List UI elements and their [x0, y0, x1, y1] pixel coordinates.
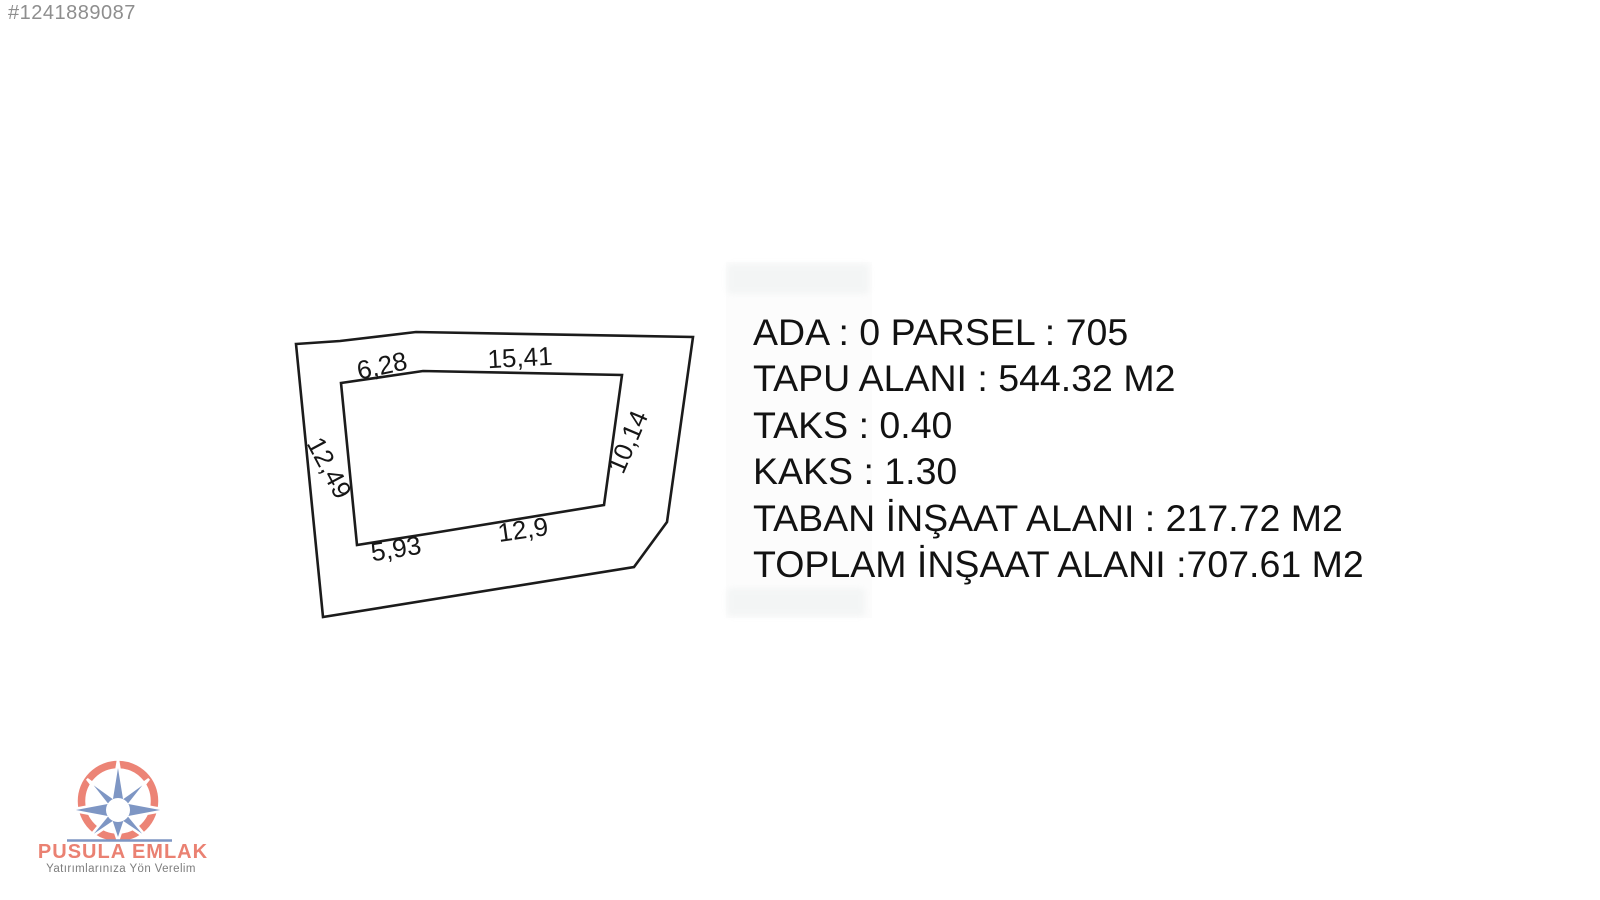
info-line-tapu-alani: TAPU ALANI : 544.32 M2 — [753, 355, 1364, 401]
info-line-taban-insaat-alani: TABAN İNŞAAT ALANI : 217.72 M2 — [753, 495, 1364, 541]
info-line-kaks: KAKS : 1.30 — [753, 448, 1364, 494]
dim-label-top: 15,41 — [487, 341, 554, 375]
info-line-toplam-insaat-alani: TOPLAM İNŞAAT ALANI :707.61 M2 — [753, 541, 1364, 587]
parcel-inner-boundary — [341, 371, 622, 545]
logo-company-name: PUSULA EMLAK — [38, 841, 208, 864]
compass-center-icon — [106, 798, 130, 822]
info-line-ada-parsel: ADA : 0 PARSEL : 705 — [753, 309, 1364, 355]
logo-tagline: Yatırımlarınıza Yön Verelim — [46, 863, 196, 875]
info-line-taks: TAKS : 0.40 — [753, 402, 1364, 448]
property-info-block: ADA : 0 PARSEL : 705 TAPU ALANI : 544.32… — [753, 309, 1364, 587]
compass-logo-icon — [30, 748, 215, 848]
